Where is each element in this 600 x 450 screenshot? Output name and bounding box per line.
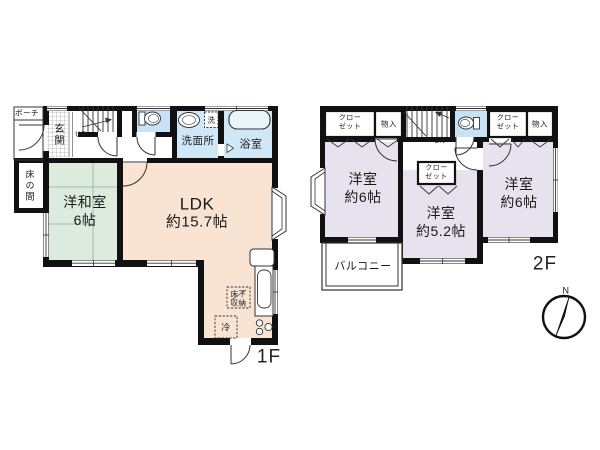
kitchen-back-door-arc xyxy=(231,345,250,364)
closet-left-line2: ゼット xyxy=(339,124,362,131)
porch-label: ポーチ xyxy=(15,109,39,117)
toilet2-icon xyxy=(459,117,480,129)
refrigerator-label: 冷 xyxy=(221,323,231,332)
closet-middle-line1: クロー xyxy=(425,164,448,171)
bay-window-bedroom-left xyxy=(311,168,325,215)
bedroom-left-size: 約6帖 xyxy=(344,190,381,204)
entrance-label: 玄関 xyxy=(52,123,62,147)
floorplan-canvas: ポーチ 玄関 UP 洗 洗面所 浴室 床の間 洋和室 6帖 LDK 約15.7帖… xyxy=(0,0,600,450)
underfloor-storage-line1: 床下 xyxy=(231,290,247,298)
window-japanese-room-left xyxy=(44,213,49,257)
ldk-room-area xyxy=(123,163,272,338)
window-bedroom-left-bottom xyxy=(348,238,376,243)
storage-left-label: 物入 xyxy=(381,120,397,128)
compass-north-label: N xyxy=(563,287,570,296)
window-genkan-top xyxy=(47,106,67,110)
ldk-name: LDK xyxy=(180,196,215,213)
toilet1-icon xyxy=(139,112,161,125)
balcony-label: バルコニー xyxy=(334,261,391,272)
ldk-size: 約15.7帖 xyxy=(166,215,228,230)
bedroom-right-size: 約6帖 xyxy=(500,195,537,209)
stairs-dn-label: DN xyxy=(435,138,445,145)
bedroom-left-name: 洋室 xyxy=(349,172,378,186)
floor2-label: 2F xyxy=(533,255,557,274)
bedroom-right-name: 洋室 xyxy=(505,177,534,191)
storage-right-label: 物入 xyxy=(532,120,548,128)
hall-door-arc xyxy=(98,137,117,156)
bedroom-middle-door-arc xyxy=(455,148,477,170)
window-ldk-bottom xyxy=(147,261,196,267)
japanese-room-area xyxy=(49,161,118,260)
bedroom-middle-name: 洋室 xyxy=(427,206,456,220)
japanese-room-name: 洋和室 xyxy=(63,195,107,209)
closet-right-line2: ゼット xyxy=(497,124,520,131)
washroom-label: 洗面所 xyxy=(182,136,215,147)
bathtub-icon xyxy=(229,111,270,130)
window-bedroom-right-bottom xyxy=(488,238,530,243)
underfloor-storage-line2: 収納 xyxy=(231,299,247,307)
toilet1-door-arc xyxy=(137,137,155,155)
closet-middle-line2: ゼット xyxy=(425,173,448,180)
japanese-room-size: 6帖 xyxy=(74,213,97,227)
bay-window-ldk xyxy=(272,187,286,240)
entrance-door-arc xyxy=(19,125,44,150)
stairs-up-label: UP xyxy=(75,130,86,138)
entrance-step-lines xyxy=(69,112,73,157)
window-toilet2-top xyxy=(456,106,486,110)
window-bedroom-middle-bottom xyxy=(420,259,465,264)
closet-left-line1: クロー xyxy=(339,115,362,122)
washer-label: 洗 xyxy=(208,116,216,124)
bedroom-middle-size: 約5.2帖 xyxy=(416,224,466,238)
window-japanese-room-bottom xyxy=(72,261,115,267)
window-bedroom-right-side xyxy=(554,148,558,212)
floor1-label: 1F xyxy=(257,348,281,367)
tokonoma-label: 床の間 xyxy=(25,170,34,203)
window-toilet1-top xyxy=(137,106,170,110)
closet-right-line1: クロー xyxy=(497,115,520,122)
compass-icon xyxy=(543,296,585,338)
sink-icon xyxy=(179,113,200,128)
bathroom-label: 浴室 xyxy=(240,140,263,151)
